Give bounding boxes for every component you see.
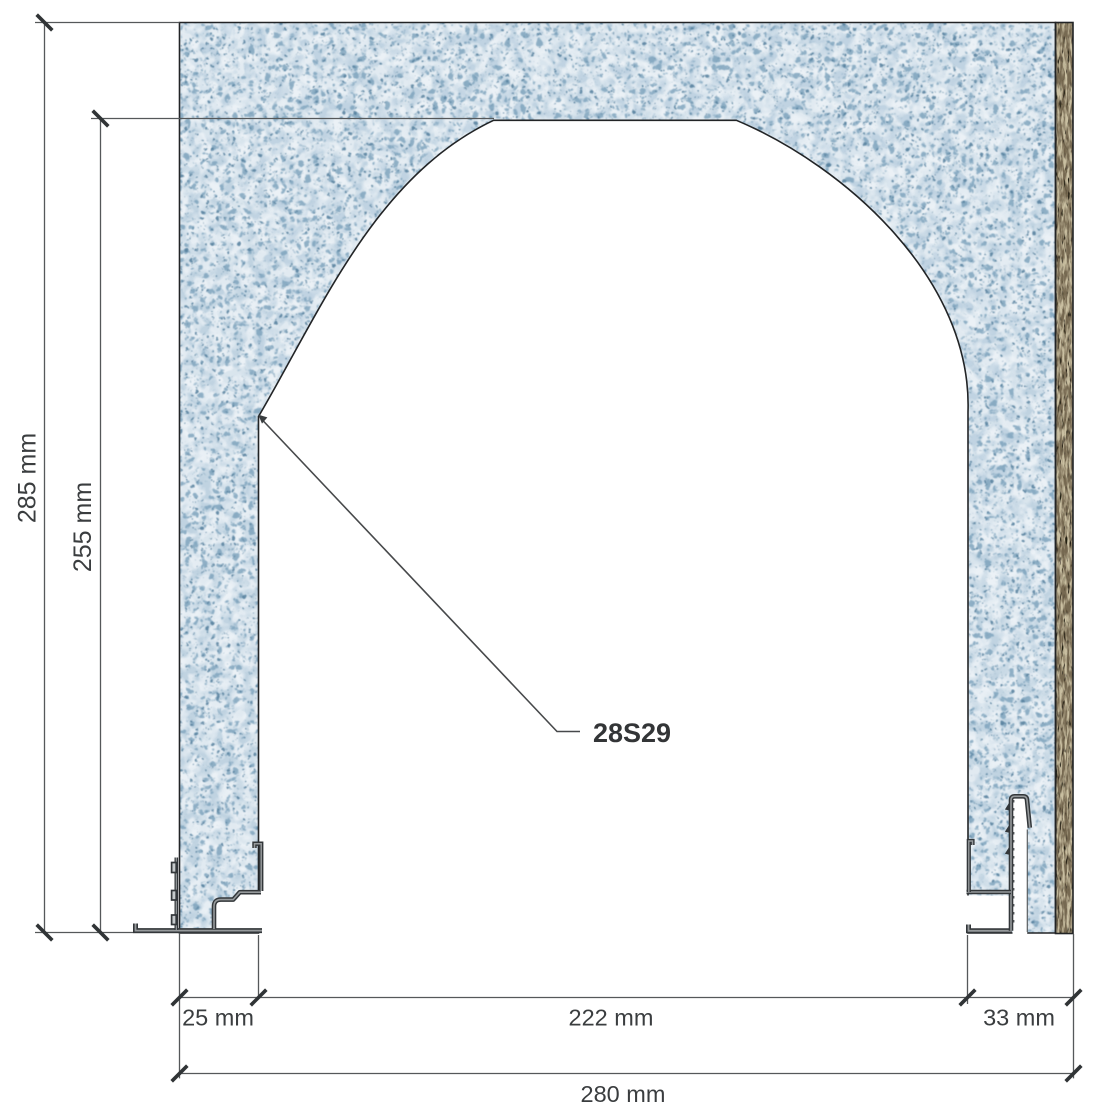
svg-text:280 mm: 280 mm: [581, 1081, 666, 1107]
svg-text:222 mm: 222 mm: [569, 1005, 654, 1031]
svg-text:33 mm: 33 mm: [983, 1005, 1055, 1031]
svg-text:285 mm: 285 mm: [14, 433, 42, 523]
svg-text:28S29: 28S29: [593, 718, 671, 748]
svg-text:25 mm: 25 mm: [182, 1005, 254, 1031]
svg-text:255 mm: 255 mm: [69, 482, 97, 572]
